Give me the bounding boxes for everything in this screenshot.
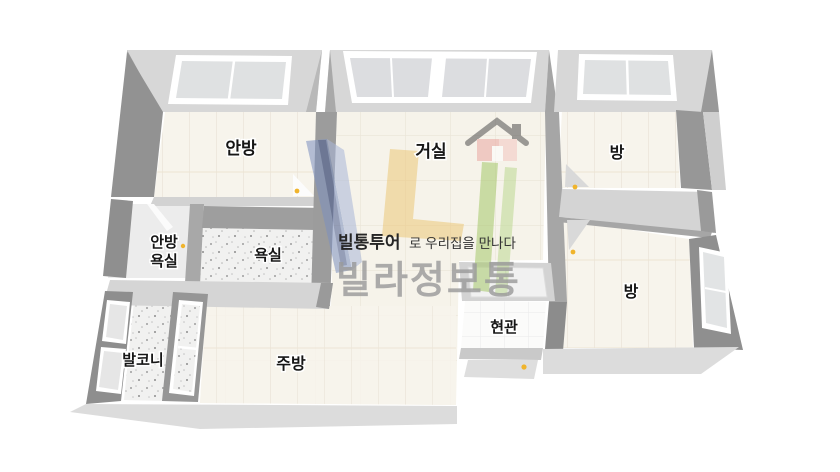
room-label-anbang-yoksil-line2: 욕실	[150, 253, 178, 270]
bang-bottom-window	[699, 247, 731, 334]
anbang-window	[168, 55, 292, 105]
wall-anbang-south	[150, 197, 316, 206]
wall-south-left	[70, 404, 457, 429]
wall-yoksil-north-face	[202, 206, 318, 230]
wall-bathrow-south	[103, 280, 333, 309]
door-hinge-dot	[295, 189, 300, 194]
room-label-hyeongwan: 현관	[490, 319, 518, 336]
door-hinge-dot	[573, 185, 578, 190]
door-hinge-dot	[571, 250, 576, 255]
floorplan-image: 빌통투어 로 우리집을 만나다 빌라정보통 안방 거실 방 안방 욕실 욕실 방…	[0, 0, 840, 472]
room-label-jubang: 주방	[276, 355, 306, 373]
room-label-bang-bottom: 방	[624, 283, 639, 301]
door-hinge-dot	[521, 364, 526, 369]
door-hinge-dot	[181, 244, 185, 248]
floorplan-svg: 빌통투어 로 우리집을 만나다 빌라정보통 안방 거실 방 안방 욕실 욕실 방…	[0, 0, 840, 472]
entrance-step	[464, 360, 538, 379]
room-label-anbang: 안방	[225, 139, 257, 158]
watermark-brand: 빌라정보통	[336, 260, 521, 302]
wall-south-right	[543, 347, 739, 374]
bang-window	[577, 54, 677, 101]
room-label-bang-top: 방	[610, 144, 625, 162]
balcony-window-upper	[102, 300, 130, 344]
watermark-tagline-bold: 빌통투어	[338, 233, 401, 252]
room-label-anbang-yoksil-line1: 안방	[150, 233, 178, 251]
room-floor-kitchen	[200, 306, 456, 405]
living-window	[343, 51, 537, 103]
wall-entrance-south	[459, 348, 543, 360]
room-label-yoksil: 욕실	[254, 247, 282, 264]
room-label-geosil: 거실	[415, 142, 446, 161]
watermark-tagline-rest: 로 우리집을 만나다	[409, 236, 516, 251]
room-label-balkoni: 발코니	[122, 352, 163, 369]
